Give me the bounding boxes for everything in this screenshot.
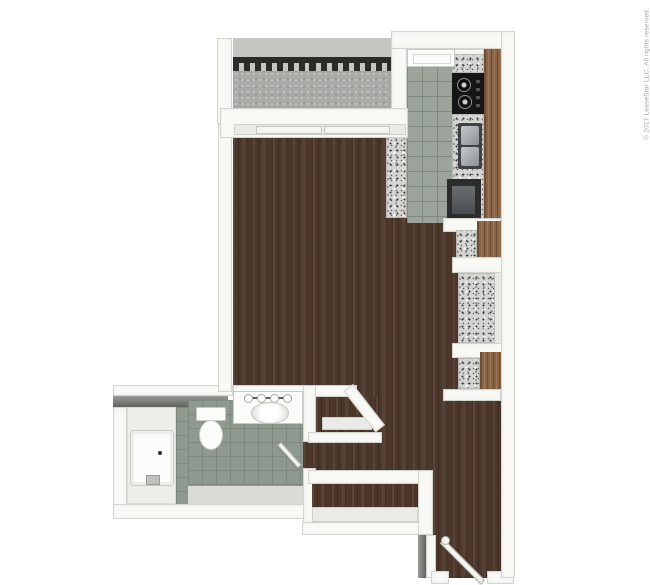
entry-door-hinge (441, 536, 450, 545)
stove (452, 73, 484, 114)
balcony-railing-post (309, 57, 316, 71)
wall-band-right (443, 389, 501, 401)
sink-basin (461, 147, 479, 166)
refrigerator (447, 179, 481, 221)
counter-b (458, 273, 495, 343)
sliding-door-panel (256, 126, 322, 134)
entry-closet-east-wall (418, 470, 433, 535)
bathtub (130, 430, 174, 486)
floorplan-canvas: © 2017 LeaseStar LLC. All rights reserve… (0, 0, 650, 585)
sliding-door-panel (324, 126, 390, 134)
refrigerator-top (452, 186, 475, 214)
right-outer-wall (501, 31, 515, 578)
vanity-bulb (283, 394, 292, 403)
cabinet-strip-c (480, 352, 501, 389)
closet-south-wall (308, 432, 382, 443)
kitchen-sink (458, 123, 482, 169)
kitchen-north-wall (391, 31, 515, 49)
stove-burner (457, 78, 471, 92)
wall-stub-2 (452, 257, 503, 273)
vanity-sink (251, 402, 289, 424)
entry-closet-floor (312, 484, 418, 507)
window-trim (413, 54, 451, 64)
vanity-counter (233, 391, 303, 424)
stove-knobs (476, 79, 480, 107)
vanity-bulb (244, 394, 253, 403)
kitchen-peninsula-counter (386, 125, 407, 218)
balcony-floor (233, 71, 391, 108)
stove-burner (458, 95, 472, 109)
bathroom-west-wall (113, 407, 127, 519)
kitchen-floor (407, 66, 452, 223)
watermark-text: © 2017 LeaseStar LLC. All rights reserve… (644, 8, 650, 140)
toilet-tank (196, 407, 226, 421)
bathroom-north-wall (113, 385, 233, 396)
entry-closet-north-wall (308, 470, 430, 484)
kitchen-cabinets (484, 49, 501, 221)
tub-faucet (146, 475, 160, 485)
kitchen-window (407, 49, 455, 67)
vestibule-wall-top-dark (418, 535, 426, 578)
tub-drain (158, 451, 162, 455)
sink-basin (461, 126, 479, 145)
bathroom-south-wall (113, 504, 310, 519)
kitchen-counter-top (452, 54, 484, 73)
bottom-wall-left (431, 571, 449, 584)
counter-a (456, 230, 477, 259)
counter-c (458, 358, 480, 389)
toilet-bowl (199, 420, 223, 450)
entry-closet-shelf (312, 507, 418, 522)
entry-closet-south-wall (302, 522, 430, 535)
balcony-parapet (233, 38, 391, 58)
bathroom-floor-strip (188, 486, 303, 504)
living-left-wall (218, 124, 232, 392)
tub-surround-tile (176, 407, 188, 504)
